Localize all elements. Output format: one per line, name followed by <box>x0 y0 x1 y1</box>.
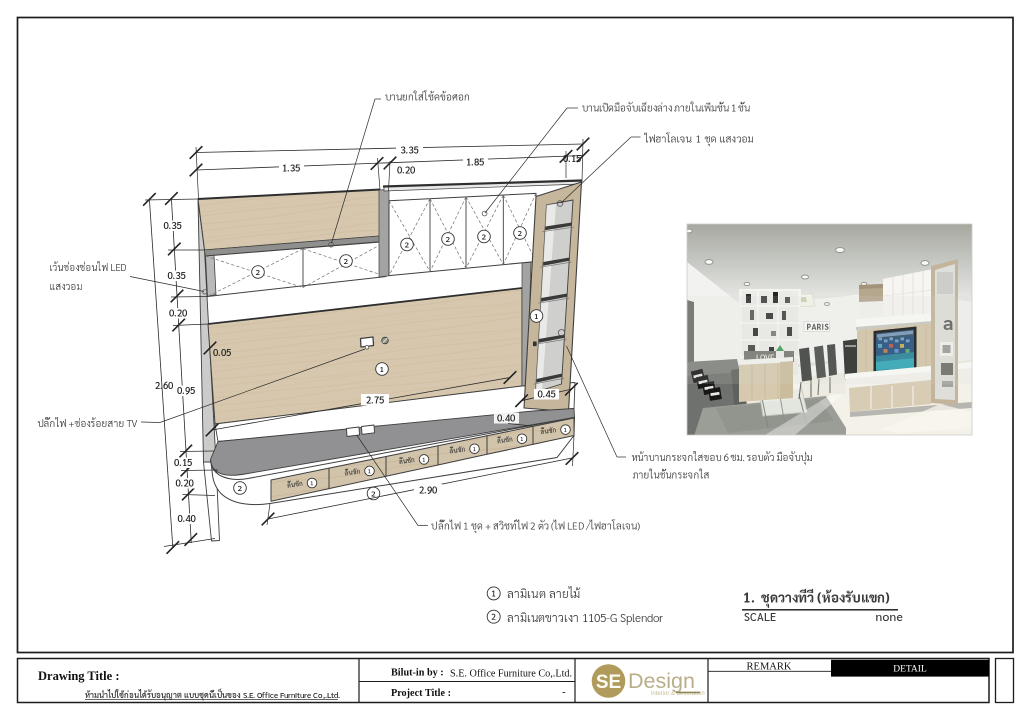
svg-text:DETAIL: DETAIL <box>893 665 927 675</box>
svg-text:REMARK: REMARK <box>747 662 792 673</box>
svg-text:S.E. Office Furniture Co,.Ltd.: S.E. Office Furniture Co,.Ltd. <box>450 669 572 680</box>
svg-text:Design: Design <box>628 669 695 693</box>
svg-text:SE: SE <box>596 672 621 693</box>
svg-text:-: - <box>562 686 566 698</box>
svg-text:Project Title :: Project Title : <box>391 688 451 699</box>
svg-text:Bilut-in by :: Bilut-in by : <box>391 668 444 679</box>
svg-text:Drawing Title :: Drawing Title : <box>38 669 119 683</box>
